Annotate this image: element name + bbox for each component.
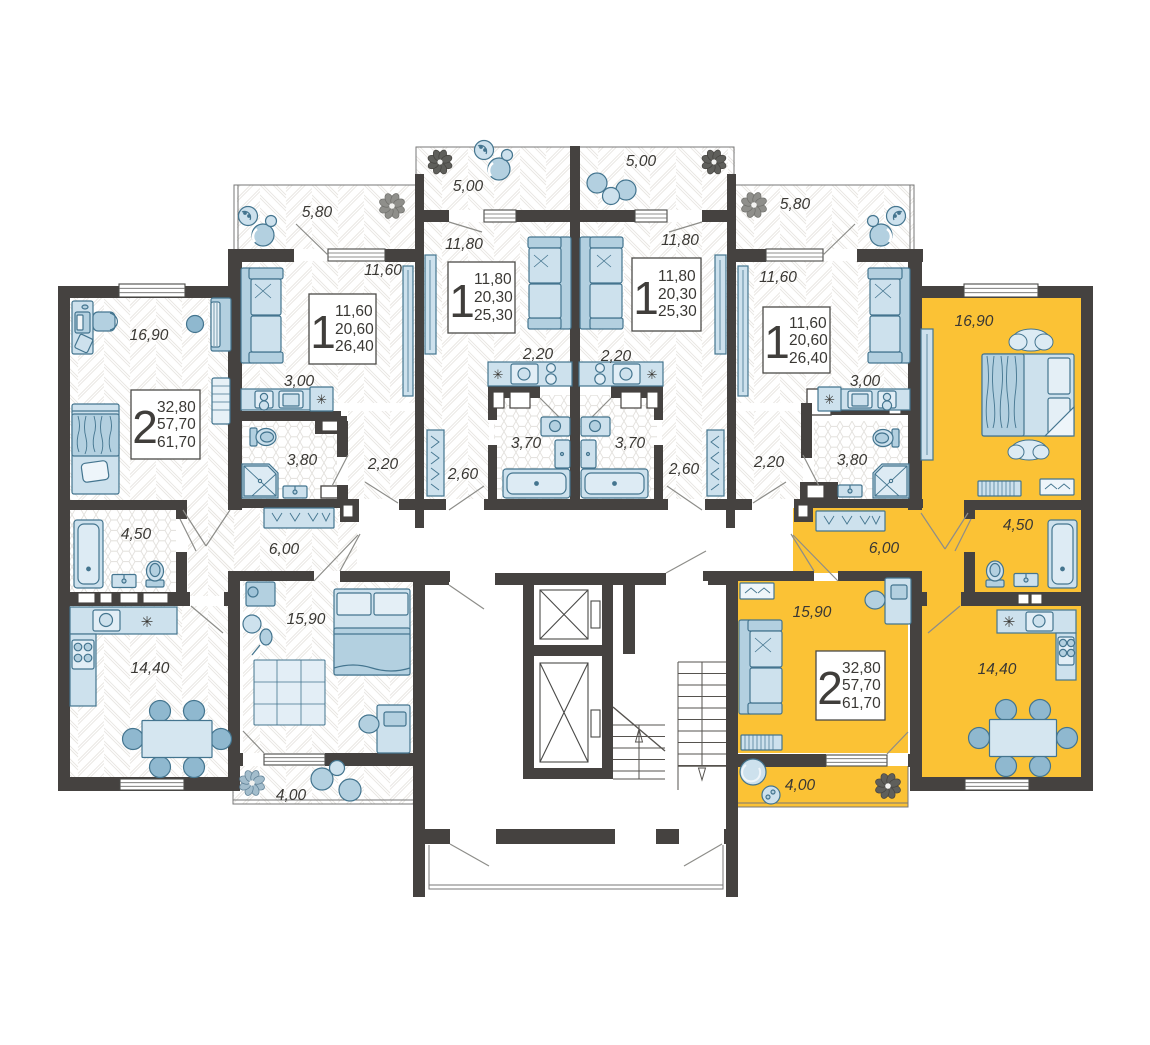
svg-text:16,90: 16,90 [955, 313, 994, 330]
svg-text:20,60: 20,60 [335, 321, 374, 338]
svg-text:57,70: 57,70 [157, 416, 196, 433]
svg-text:4,50: 4,50 [121, 526, 152, 543]
svg-text:3,70: 3,70 [511, 435, 542, 452]
svg-text:2: 2 [817, 662, 843, 714]
svg-text:2,20: 2,20 [600, 348, 632, 365]
svg-text:4,00: 4,00 [785, 777, 816, 794]
svg-text:2,20: 2,20 [367, 456, 399, 473]
svg-text:1: 1 [449, 275, 475, 327]
svg-text:11,60: 11,60 [335, 303, 373, 320]
svg-text:6,00: 6,00 [269, 541, 300, 558]
svg-text:3,70: 3,70 [615, 435, 646, 452]
svg-text:3,00: 3,00 [284, 373, 315, 390]
svg-text:5,80: 5,80 [780, 196, 811, 213]
svg-text:✳: ✳ [824, 392, 835, 407]
svg-text:3,80: 3,80 [837, 452, 868, 469]
svg-text:14,40: 14,40 [131, 660, 170, 677]
svg-text:2: 2 [132, 401, 158, 453]
svg-text:14,40: 14,40 [978, 661, 1017, 678]
svg-text:1: 1 [633, 272, 659, 324]
svg-text:6,00: 6,00 [869, 540, 900, 557]
svg-text:4,50: 4,50 [1003, 517, 1034, 534]
svg-text:25,30: 25,30 [474, 307, 513, 324]
svg-text:✳: ✳ [316, 392, 327, 407]
svg-text:2,20: 2,20 [753, 454, 785, 471]
svg-text:32,80: 32,80 [157, 399, 196, 416]
svg-text:32,80: 32,80 [842, 660, 881, 677]
svg-text:✳: ✳ [493, 367, 504, 382]
svg-text:1: 1 [764, 316, 790, 368]
svg-text:11,80: 11,80 [474, 271, 512, 288]
svg-text:✳: ✳ [1003, 614, 1016, 631]
svg-text:11,80: 11,80 [661, 232, 699, 249]
svg-text:16,90: 16,90 [130, 327, 169, 344]
svg-text:57,70: 57,70 [842, 677, 881, 694]
svg-text:20,30: 20,30 [474, 289, 513, 306]
svg-text:26,40: 26,40 [789, 350, 828, 367]
svg-text:5,00: 5,00 [453, 178, 484, 195]
svg-text:3,00: 3,00 [850, 373, 881, 390]
svg-text:11,60: 11,60 [364, 262, 402, 279]
svg-text:11,60: 11,60 [789, 315, 827, 332]
svg-text:26,40: 26,40 [335, 338, 374, 355]
svg-text:11,80: 11,80 [658, 268, 696, 285]
svg-text:11,60: 11,60 [759, 269, 797, 286]
svg-text:20,60: 20,60 [789, 332, 828, 349]
svg-text:5,00: 5,00 [626, 153, 657, 170]
svg-text:✳: ✳ [647, 367, 658, 382]
svg-text:61,70: 61,70 [842, 695, 881, 712]
svg-text:5,80: 5,80 [302, 204, 333, 221]
svg-text:61,70: 61,70 [157, 434, 196, 451]
svg-text:✳: ✳ [141, 614, 154, 631]
svg-text:15,90: 15,90 [287, 611, 326, 628]
svg-text:2,60: 2,60 [668, 461, 700, 478]
svg-text:15,90: 15,90 [793, 604, 832, 621]
svg-text:20,30: 20,30 [658, 286, 697, 303]
svg-text:4,00: 4,00 [276, 787, 307, 804]
svg-text:2,60: 2,60 [447, 466, 479, 483]
svg-text:11,80: 11,80 [445, 236, 483, 253]
svg-text:1: 1 [310, 306, 336, 358]
svg-text:3,80: 3,80 [287, 452, 318, 469]
svg-text:2,20: 2,20 [522, 346, 554, 363]
svg-text:25,30: 25,30 [658, 303, 697, 320]
